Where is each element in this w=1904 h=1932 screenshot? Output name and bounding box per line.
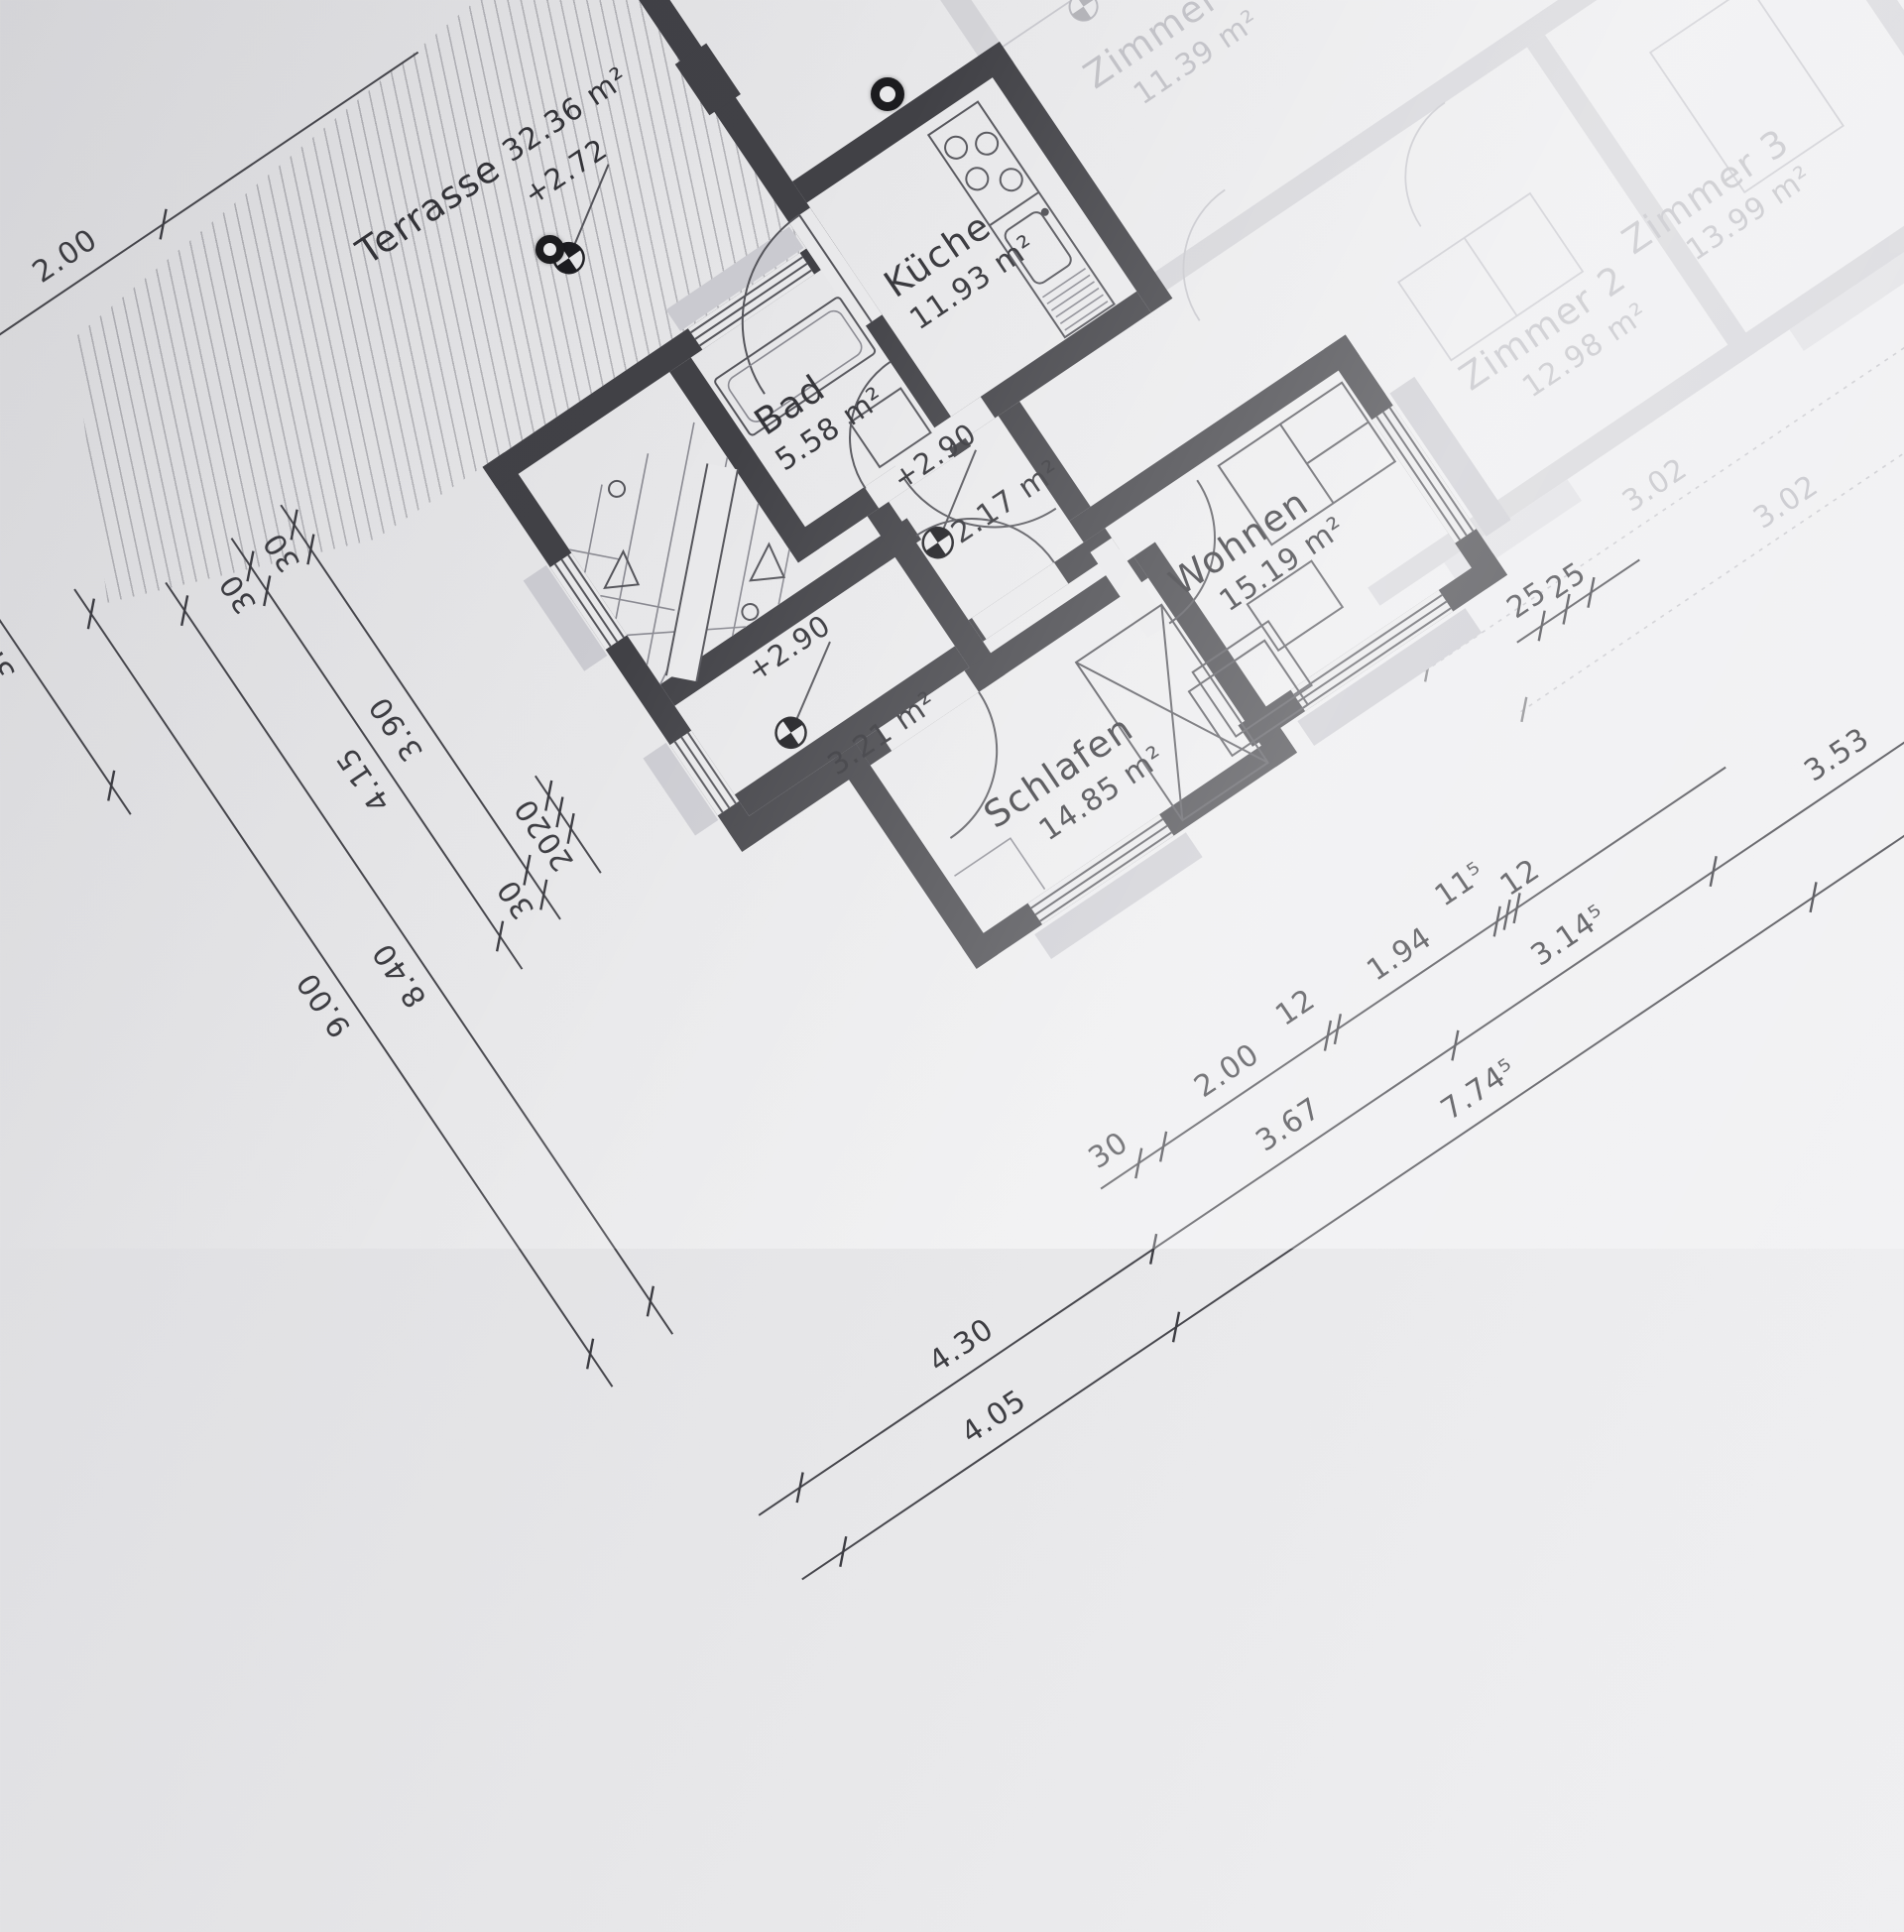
dimension-chain-terrace: 3.75 [0,446,140,838]
stove-burner [941,133,972,164]
dimension-chain-left-2: 30 4.15 [196,533,532,994]
dim-label: 3.53 [1798,721,1875,789]
room-area-korridor: 2.17 m² [945,453,1067,551]
dim-label: 11⁵ [1429,856,1492,914]
stove-burner [972,128,1003,159]
dimension-chain-bottom-1: 30 2.00 12 1.94 11⁵ 12 [1063,710,1732,1197]
stair-arrow-up [594,551,644,601]
dim-label: 8.40 [366,936,434,1014]
dim-label: 3.67 [1249,1091,1327,1159]
rotated-blueprint-sheet: +2.90 Zimmer 11.39 m² Zimmer 2 12.98 m² … [0,0,1904,1932]
dim-label: 3.02 [1616,451,1694,520]
dim-label: 12 [1494,852,1547,903]
dimension-chain-left-4: 9.00 [39,583,621,1410]
stove-burner [996,165,1026,195]
dim-label: 2.00 [27,222,104,291]
dim-label: 4.15 [329,741,398,818]
floor-plan-drawing: +2.90 Zimmer 11.39 m² Zimmer 2 12.98 m² … [0,0,1904,1932]
dimension-chain-bottom-2: 4.30 3.67 3.14⁵ 3.53 [734,641,1904,1524]
dimension-chain-left-3: 8.40 [130,576,681,1358]
stove-burner [962,164,993,194]
dim-label: 3.02 [1747,468,1825,537]
dim-label: 2.00 [1188,1036,1265,1105]
dim-label: 4.05 [955,1383,1032,1451]
dim-label: 30 [1083,1125,1135,1175]
faded-furniture-line [1465,238,1517,316]
dim-label: 7.74⁵ [1435,1052,1523,1128]
punch-hole [871,77,904,111]
dim-label: 4.30 [922,1311,1000,1380]
dim-label: 12 [1269,982,1322,1032]
stair-start-circle [606,478,628,500]
dim-label: 9.00 [291,966,359,1043]
photographed-floor-plan: { "rooms": { "terrasse": {"name": "Terra… [0,0,1904,1249]
room-name-terrasse: Terrasse [348,147,509,274]
dimension-chain-left-1: 30 3.90 30 [242,499,569,945]
punch-hole [535,235,564,264]
dimension-chain-bottom-3: 4.05 7.74⁵ [777,705,1904,1589]
dim-label: 3.90 [362,689,430,767]
dim-label: 3.14⁵ [1525,899,1613,974]
dimension-chain-top: 30 2.00 [0,15,424,389]
dim-label: 1.94 [1361,920,1438,989]
